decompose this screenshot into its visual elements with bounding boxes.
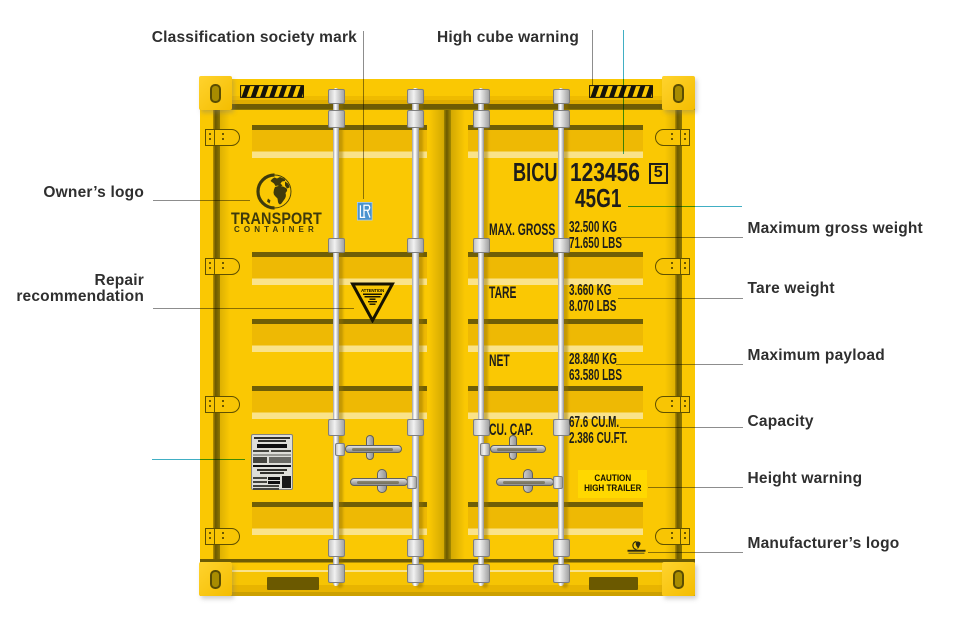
svg-text:ATTENTION: ATTENTION — [361, 288, 384, 293]
